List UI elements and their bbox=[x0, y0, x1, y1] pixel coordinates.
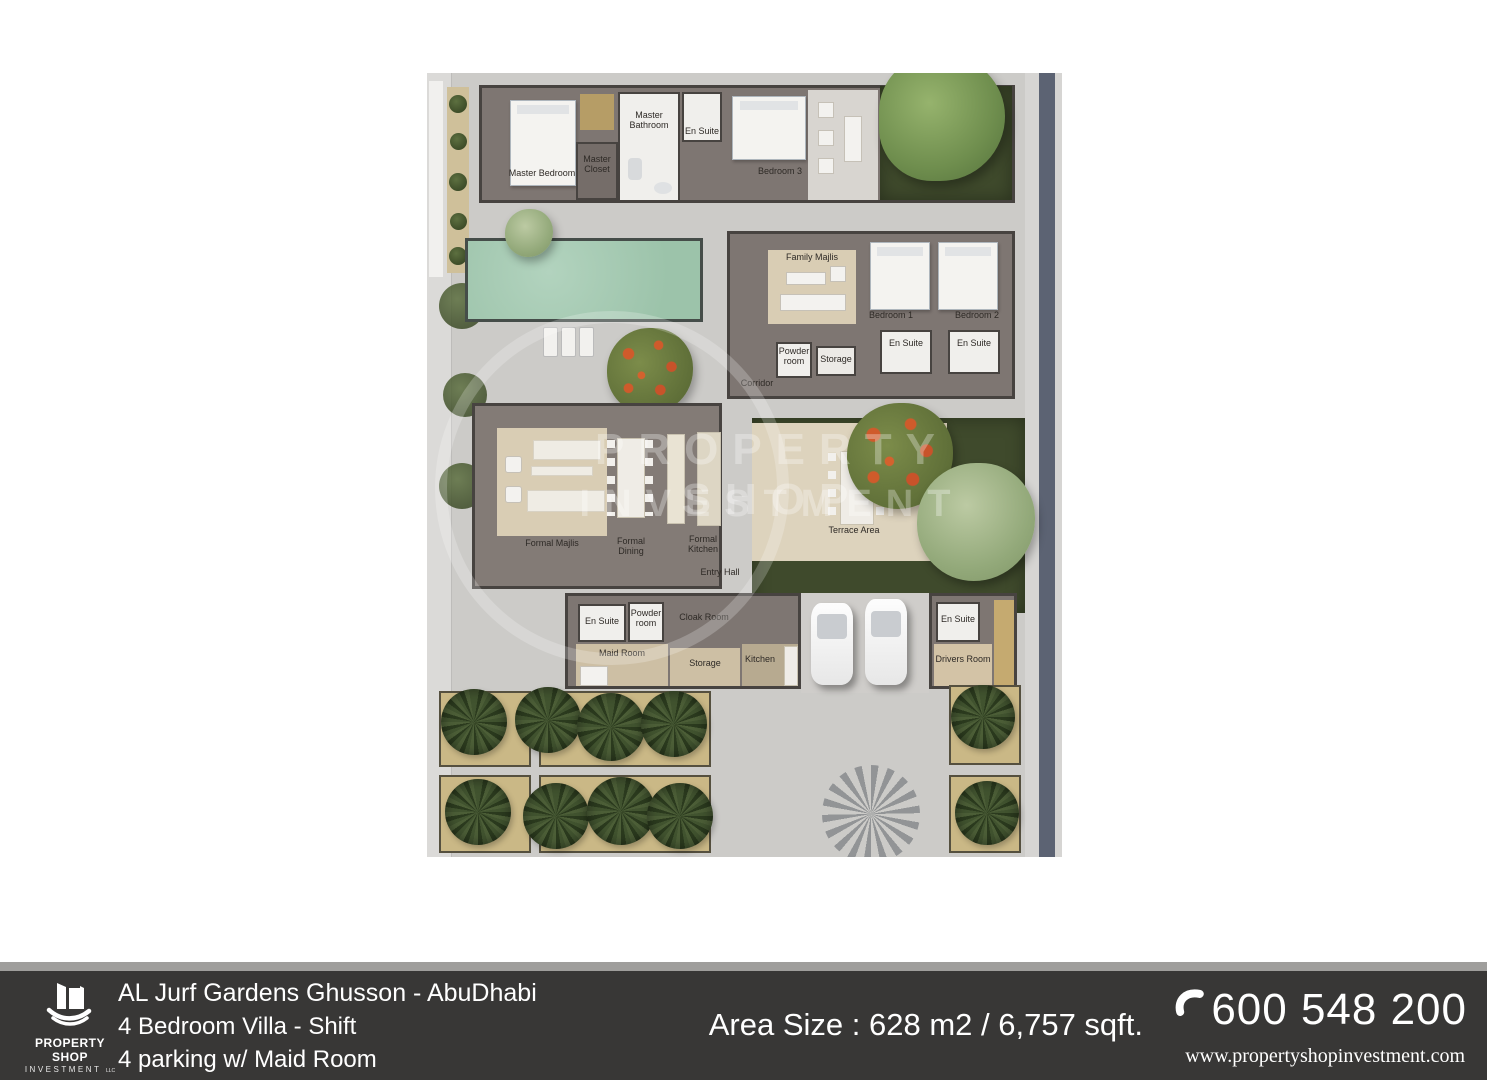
room-label-bedroom-1: Bedroom 1 bbox=[856, 310, 926, 320]
right-road-stripe bbox=[1039, 73, 1055, 857]
room-label-storage-upper: Storage bbox=[814, 354, 858, 364]
room-label-en-suite-top: En Suite bbox=[678, 126, 726, 136]
master-bathroom-room bbox=[618, 92, 680, 202]
room-label-storage-lower: Storage bbox=[682, 658, 728, 668]
watermark-line2: INVESTMENT bbox=[537, 483, 1007, 526]
area-size-text: Area Size : 628 m2 / 6,757 sqft. bbox=[709, 1007, 1143, 1043]
service-building-right: En Suite Drivers Room bbox=[929, 593, 1017, 689]
flyer-canvas: Master Bedroom Master Closet Master Bath… bbox=[0, 0, 1487, 1080]
room-label-terrace-area: Terrace Area bbox=[818, 525, 890, 535]
wardrobe bbox=[580, 94, 614, 130]
room-label-bedroom-2: Bedroom 2 bbox=[942, 310, 1012, 320]
top-patio bbox=[808, 90, 878, 200]
palm-tree-8 bbox=[587, 777, 655, 845]
swimming-pool bbox=[465, 238, 703, 322]
palm-tree-10 bbox=[955, 781, 1019, 845]
floor-plan-render: Master Bedroom Master Closet Master Bath… bbox=[427, 73, 1062, 857]
palm-shadow bbox=[822, 765, 920, 857]
palm-tree-7 bbox=[523, 783, 589, 849]
family-wing-building: Family Majlis Bedroom 1 Bedroom 2 En Sui… bbox=[727, 231, 1015, 399]
side-deck bbox=[994, 600, 1014, 686]
room-label-en-suite-1: En Suite bbox=[880, 338, 932, 348]
footer-divider-strip bbox=[0, 962, 1487, 971]
palm-tree-9 bbox=[647, 783, 713, 849]
left-wall bbox=[429, 81, 443, 277]
room-label-en-suite-driver: En Suite bbox=[934, 614, 982, 624]
room-label-powder-room-upper: Powder room bbox=[774, 346, 814, 366]
project-parking: 4 parking w/ Maid Room bbox=[118, 1046, 377, 1074]
palm-tree-1 bbox=[441, 689, 507, 755]
kitchen-room bbox=[742, 644, 798, 686]
room-label-master-bathroom: Master Bathroom bbox=[618, 110, 680, 130]
bedroom1-bed bbox=[870, 242, 930, 310]
logo-sub-text: INVESTMENT bbox=[25, 1065, 101, 1074]
logo-name: PROPERTY SHOP bbox=[20, 1036, 120, 1064]
buildings-icon bbox=[39, 977, 101, 1029]
palm-tree-5 bbox=[951, 685, 1015, 749]
room-label-family-majlis: Family Majlis bbox=[766, 252, 858, 262]
car-1 bbox=[811, 603, 853, 685]
logo-sub: INVESTMENT LLC bbox=[20, 1065, 120, 1074]
project-subtitle: 4 Bedroom Villa - Shift bbox=[118, 1013, 356, 1041]
palm-tree-4 bbox=[641, 691, 707, 757]
room-label-en-suite-2: En Suite bbox=[948, 338, 1000, 348]
bedroom3-bed bbox=[732, 96, 806, 160]
footer-bar: PROPERTY SHOP INVESTMENT LLC AL Jurf Gar… bbox=[0, 971, 1487, 1080]
room-label-drivers-room: Drivers Room bbox=[932, 654, 994, 664]
drivers-room bbox=[934, 644, 992, 686]
phone-icon bbox=[1175, 988, 1205, 1018]
ensuite1-room bbox=[880, 330, 932, 374]
room-label-kitchen: Kitchen bbox=[734, 654, 786, 664]
palm-tree-3 bbox=[577, 693, 645, 761]
project-title: AL Jurf Gardens Ghusson - AbuDhabi bbox=[118, 979, 537, 1008]
room-label-master-closet: Master Closet bbox=[576, 154, 618, 174]
palm-tree-2 bbox=[515, 687, 581, 753]
ensuite2-room bbox=[948, 330, 1000, 374]
logo-suffix: LLC bbox=[106, 1068, 115, 1074]
phone-number-text: 600 548 200 bbox=[1211, 985, 1467, 1034]
room-label-master-bedroom: Master Bedroom bbox=[500, 168, 584, 178]
car-2 bbox=[865, 599, 907, 685]
website-url: www.propertyshopinvestment.com bbox=[1185, 1045, 1465, 1068]
company-logo: PROPERTY SHOP INVESTMENT LLC bbox=[20, 977, 120, 1074]
phone-number: 600 548 200 bbox=[1175, 985, 1467, 1035]
palm-tree-6 bbox=[445, 779, 511, 845]
bedroom2-bed bbox=[938, 242, 998, 310]
